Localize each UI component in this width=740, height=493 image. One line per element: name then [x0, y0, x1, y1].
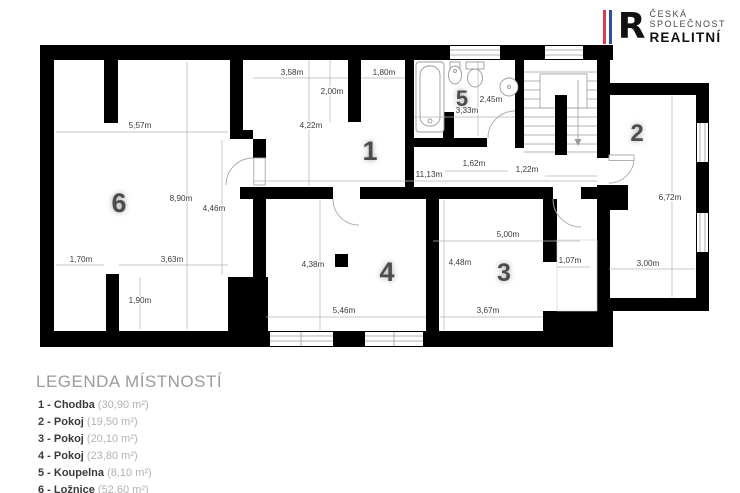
dimension-label: 2,45m — [480, 95, 503, 104]
floorplan-drawing: 5,57m8,90m4,46m1,70m3,63m1,90m3,58m1,80m… — [0, 0, 740, 365]
dimension-label: 3,58m — [281, 68, 304, 77]
dimension-label: 4,48m — [449, 258, 472, 267]
staircase — [524, 72, 597, 155]
dimension-label: 6,72m — [659, 193, 682, 202]
legend-item-3: 3 - Pokoj (20,10 m²) — [38, 433, 222, 445]
dimension-label: 3,67m — [477, 306, 500, 315]
dimension-label: 1,22m — [516, 165, 539, 174]
dimension-label: 8,90m — [170, 194, 193, 203]
bidet-icon — [449, 62, 462, 84]
legend-title: LEGENDA MÍSTNOSTÍ — [36, 372, 222, 392]
dimension-label: 4,38m — [302, 260, 325, 269]
floorplan-page: R ČESKÁ SPOLEČNOST REALITNÍ — [0, 0, 740, 493]
dimension-label: 5,57m — [129, 121, 152, 130]
legend-item-2: 2 - Pokoj (19,50 m²) — [38, 416, 222, 428]
dimension-label: 1,62m — [463, 159, 486, 168]
dimension-label: 5,46m — [333, 306, 356, 315]
dimension-label: 4,22m — [300, 121, 323, 130]
dimension-label: 1,70m — [70, 255, 93, 264]
room-number-4: 4 — [379, 257, 394, 287]
room-number-2: 2 — [630, 120, 643, 147]
dimension-label: 1,90m — [129, 296, 152, 305]
room-number-3: 3 — [497, 259, 511, 287]
dimension-label: 3,00m — [637, 259, 660, 268]
toilet-icon — [466, 62, 484, 87]
legend-item-1: 1 - Chodba (30,90 m²) — [38, 399, 222, 411]
room-number-5: 5 — [456, 86, 468, 111]
room-number-1: 1 — [362, 136, 377, 166]
dimension-label: 1,07m — [559, 256, 582, 265]
dimension-label: 11,13m — [416, 170, 443, 179]
niche — [557, 240, 597, 311]
room-legend: LEGENDA MÍSTNOSTÍ 1 - Chodba (30,90 m²) … — [36, 372, 222, 493]
dimension-label: 2,00m — [321, 87, 344, 96]
legend-item-6: 6 - Ložnice (52,60 m²) — [38, 484, 222, 493]
dimension-label: 4,46m — [203, 204, 226, 213]
sink-icon — [500, 78, 518, 96]
legend-item-4: 4 - Pokoj (23,80 m²) — [38, 450, 222, 462]
room-number-6: 6 — [111, 188, 126, 218]
dimension-label: 5,00m — [497, 230, 520, 239]
dimension-label: 1,80m — [373, 68, 396, 77]
dimension-label: 3,63m — [161, 255, 184, 264]
legend-item-5: 5 - Koupelna (8,10 m²) — [38, 467, 222, 479]
